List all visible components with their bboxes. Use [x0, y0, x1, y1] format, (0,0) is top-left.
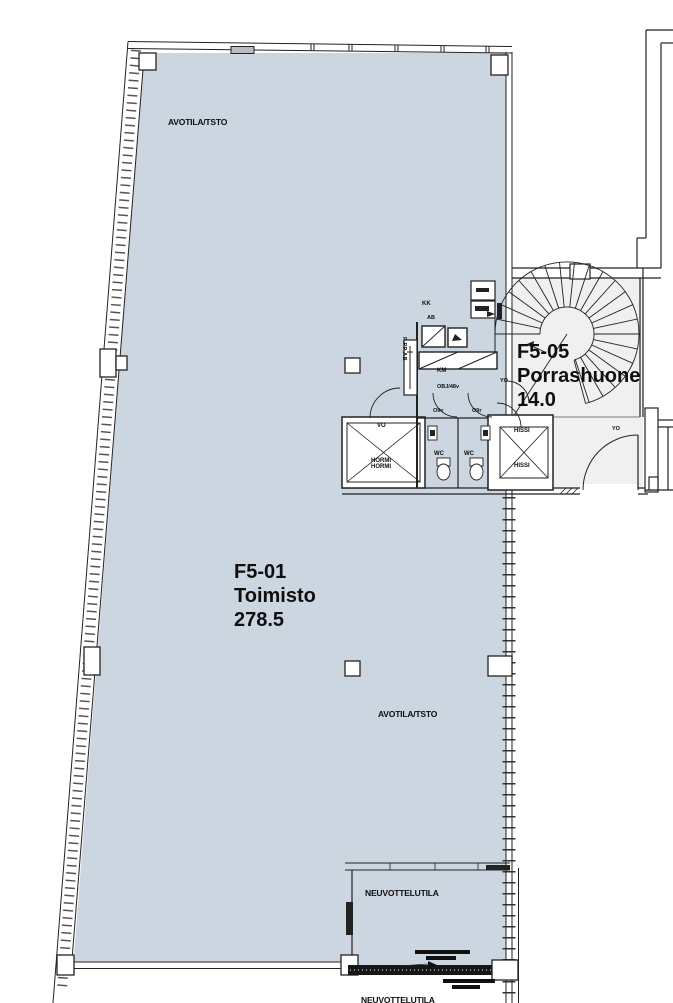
room-label-porrashuone: F5-05 Porrashuone 14.0	[517, 340, 640, 412]
hormi-label-line2: HORMI	[364, 464, 398, 470]
elevator-shaft	[488, 403, 553, 490]
right-landing-walls	[645, 408, 673, 492]
ab-label: AB	[427, 316, 435, 322]
wc-label-right: WC	[464, 451, 474, 457]
floorplan-drawing	[0, 0, 673, 1003]
door-label-o9v: O9v	[433, 409, 443, 415]
kk-label: KK	[422, 301, 431, 307]
yo-label-core: YO	[500, 379, 508, 385]
adjacent-corridor-walls	[637, 30, 673, 268]
obj-label: OBJ/48v	[437, 385, 459, 391]
room-label-neuvottelutila: NEUVOTTELUTILA	[365, 889, 439, 898]
hissi-label-bottom: HISSI	[514, 463, 530, 469]
room-label-neuvottelutila-below: NEUVOTTELUTILA	[361, 996, 435, 1003]
vo-label: VO	[377, 423, 386, 429]
door-label-o9r: O9r	[472, 409, 481, 415]
floor-plan: AVOTILA/TSTO AVOTILA/TSTO F5-01 Toimisto…	[0, 0, 673, 1003]
toimisto-room-id: F5-01	[234, 560, 316, 584]
room-label-avotila-top: AVOTILA/TSTO	[168, 118, 227, 127]
hormi-label: HORMI HORMI	[364, 458, 398, 471]
office-zone-fill	[73, 53, 506, 968]
ppp-ab-label: P.PP.AB	[400, 337, 406, 399]
wc-label-left: WC	[434, 451, 444, 457]
toimisto-room-name: Toimisto	[234, 584, 316, 608]
porrashuone-room-id: F5-05	[517, 340, 640, 364]
porrashuone-room-area: 14.0	[517, 388, 640, 412]
room-label-avotila-mid: AVOTILA/TSTO	[378, 710, 437, 719]
yo-label-stair: YO	[612, 427, 620, 433]
porrashuone-room-name: Porrashuone	[517, 364, 640, 388]
toimisto-room-area: 278.5	[234, 608, 316, 632]
km-label: KM	[437, 368, 446, 374]
hissi-label-top: HISSI	[514, 428, 530, 434]
room-label-toimisto: F5-01 Toimisto 278.5	[234, 560, 316, 632]
